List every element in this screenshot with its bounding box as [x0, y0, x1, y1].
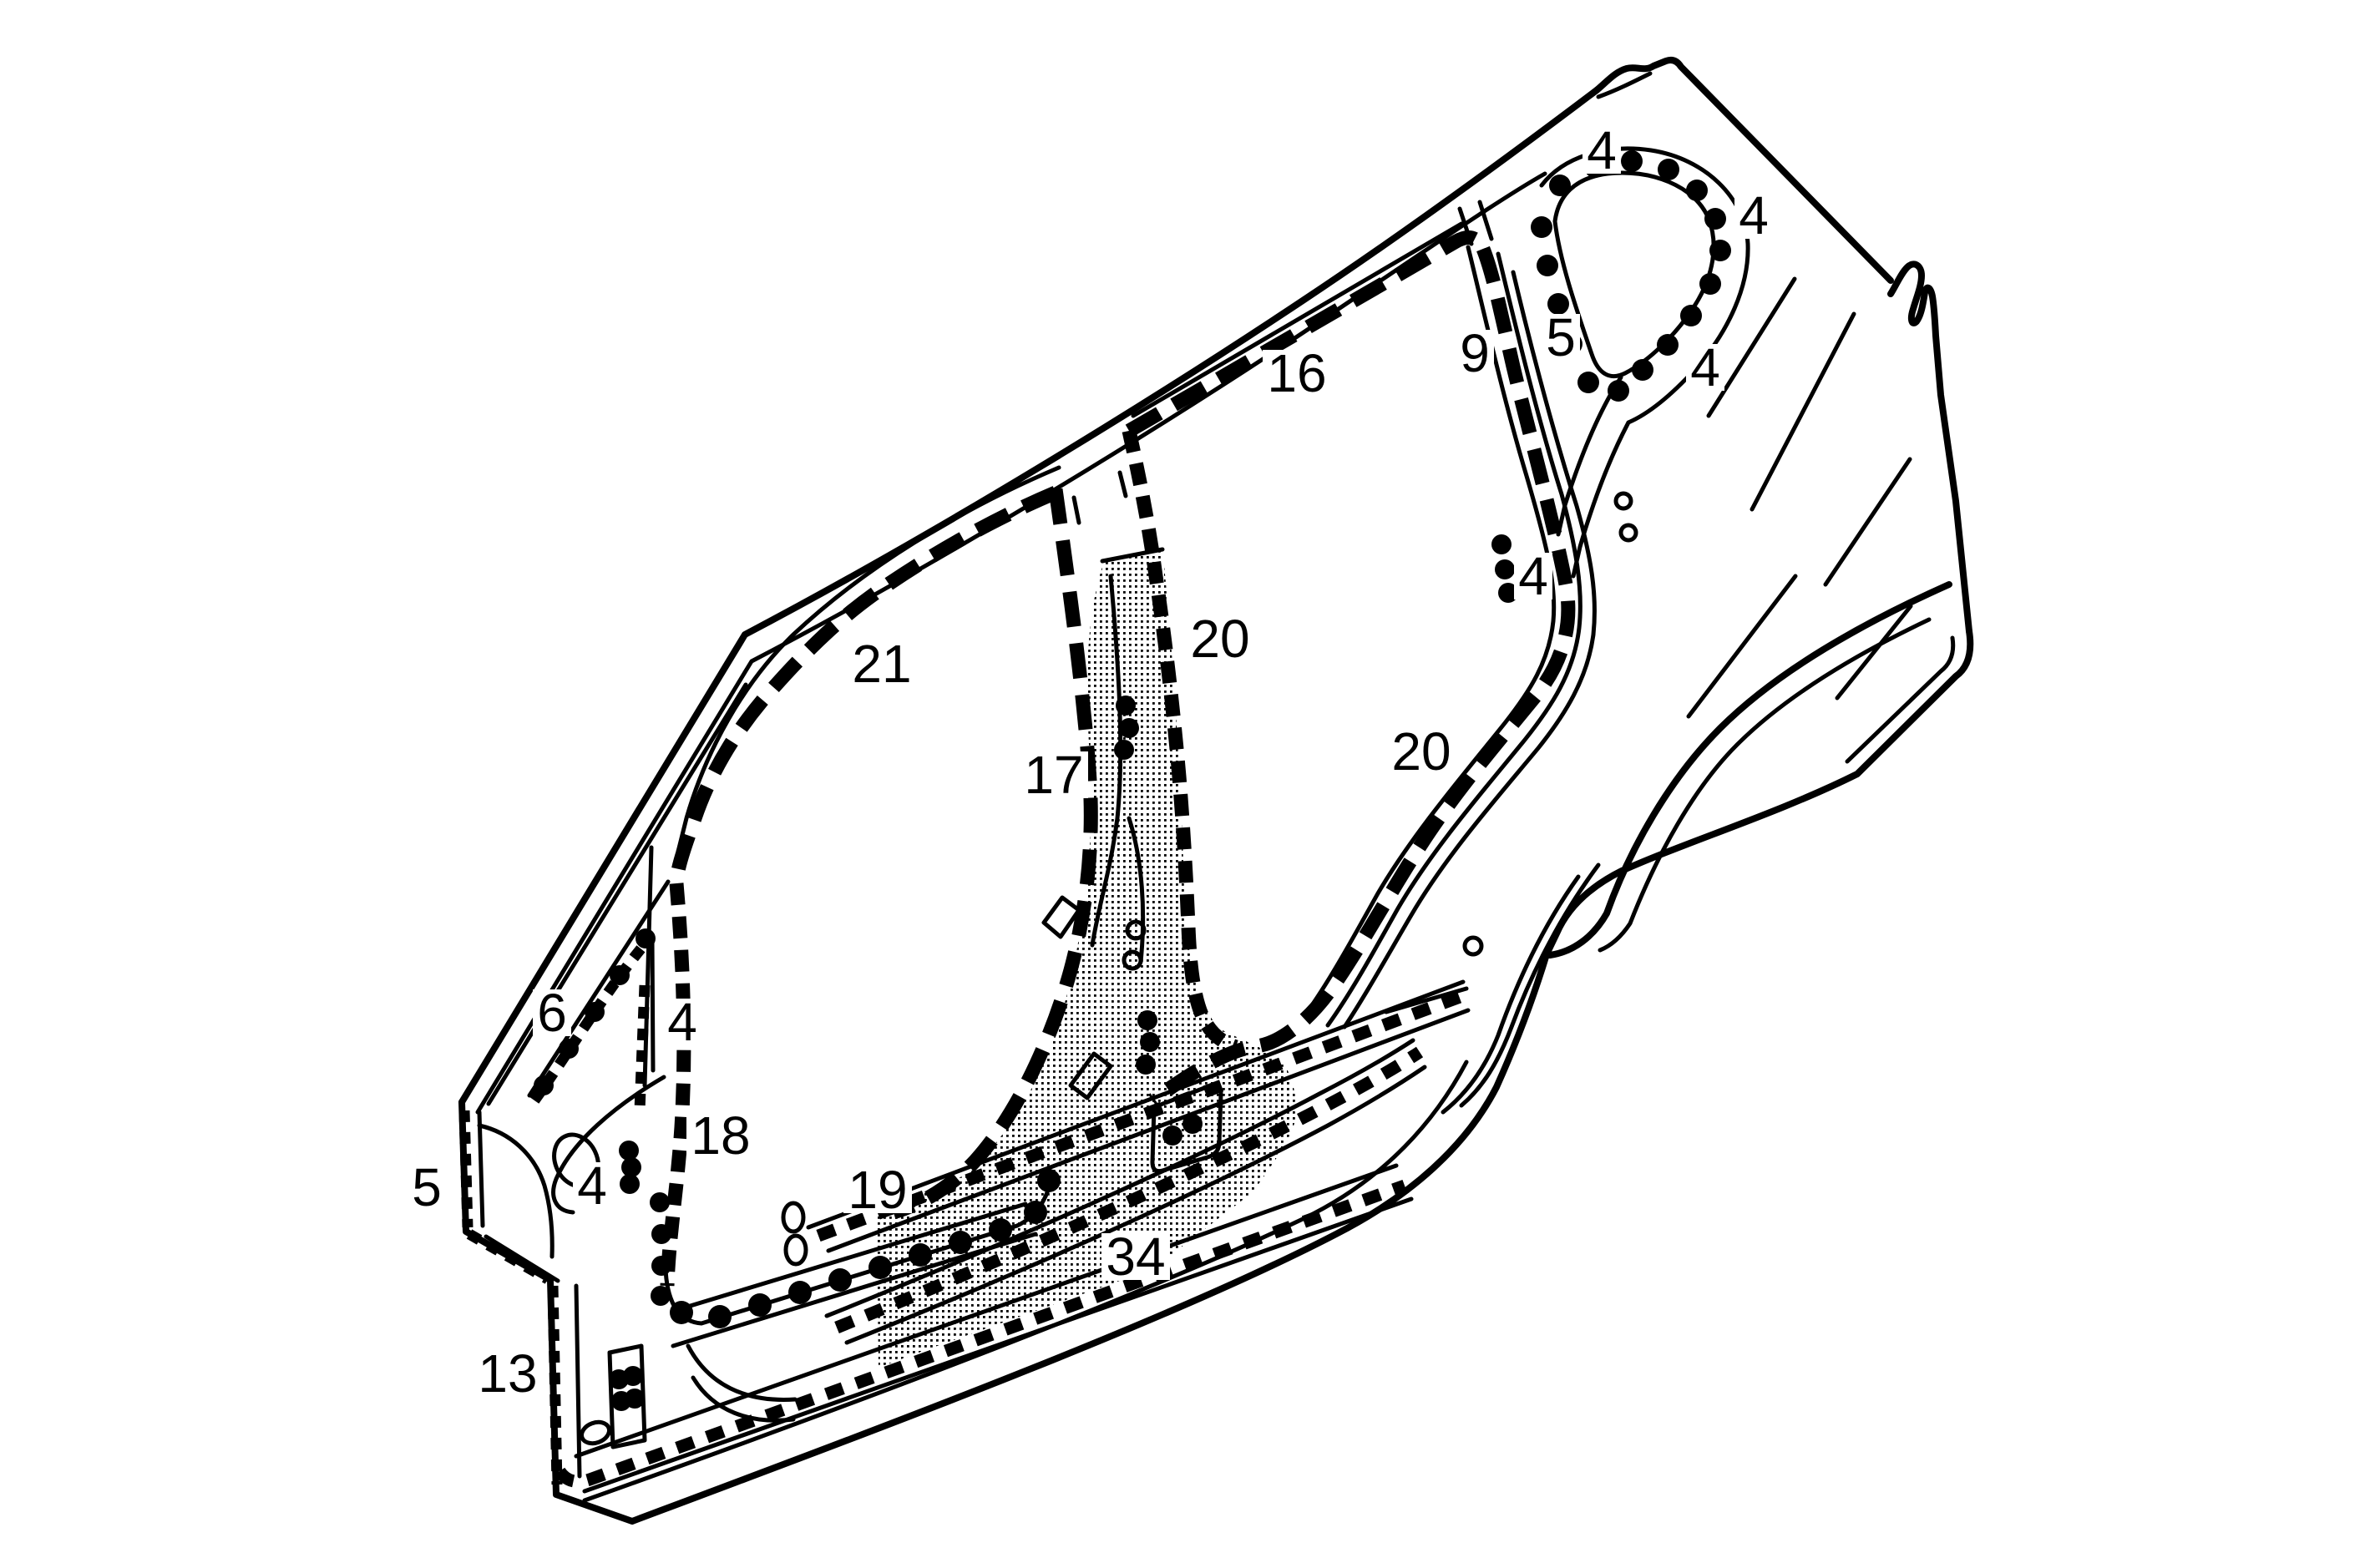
svg-text:17: 17 — [1024, 745, 1083, 805]
svg-text:5: 5 — [1546, 307, 1576, 367]
svg-text:4: 4 — [1739, 185, 1769, 245]
svg-text:6: 6 — [537, 983, 567, 1043]
svg-text:21: 21 — [852, 634, 911, 694]
svg-text:5: 5 — [412, 1157, 442, 1217]
svg-text:19: 19 — [848, 1160, 907, 1220]
svg-text:4: 4 — [1690, 337, 1720, 397]
svg-text:34: 34 — [1106, 1227, 1165, 1287]
svg-text:16: 16 — [1267, 343, 1326, 403]
svg-text:13: 13 — [478, 1343, 537, 1404]
svg-text:18: 18 — [691, 1105, 750, 1166]
svg-text:4: 4 — [1587, 120, 1617, 180]
svg-text:4: 4 — [1518, 546, 1548, 606]
svg-text:20: 20 — [1190, 609, 1249, 669]
svg-text:9: 9 — [1460, 323, 1490, 383]
svg-text:4: 4 — [667, 992, 697, 1052]
svg-text:4: 4 — [577, 1156, 607, 1216]
svg-text:20: 20 — [1391, 721, 1451, 782]
